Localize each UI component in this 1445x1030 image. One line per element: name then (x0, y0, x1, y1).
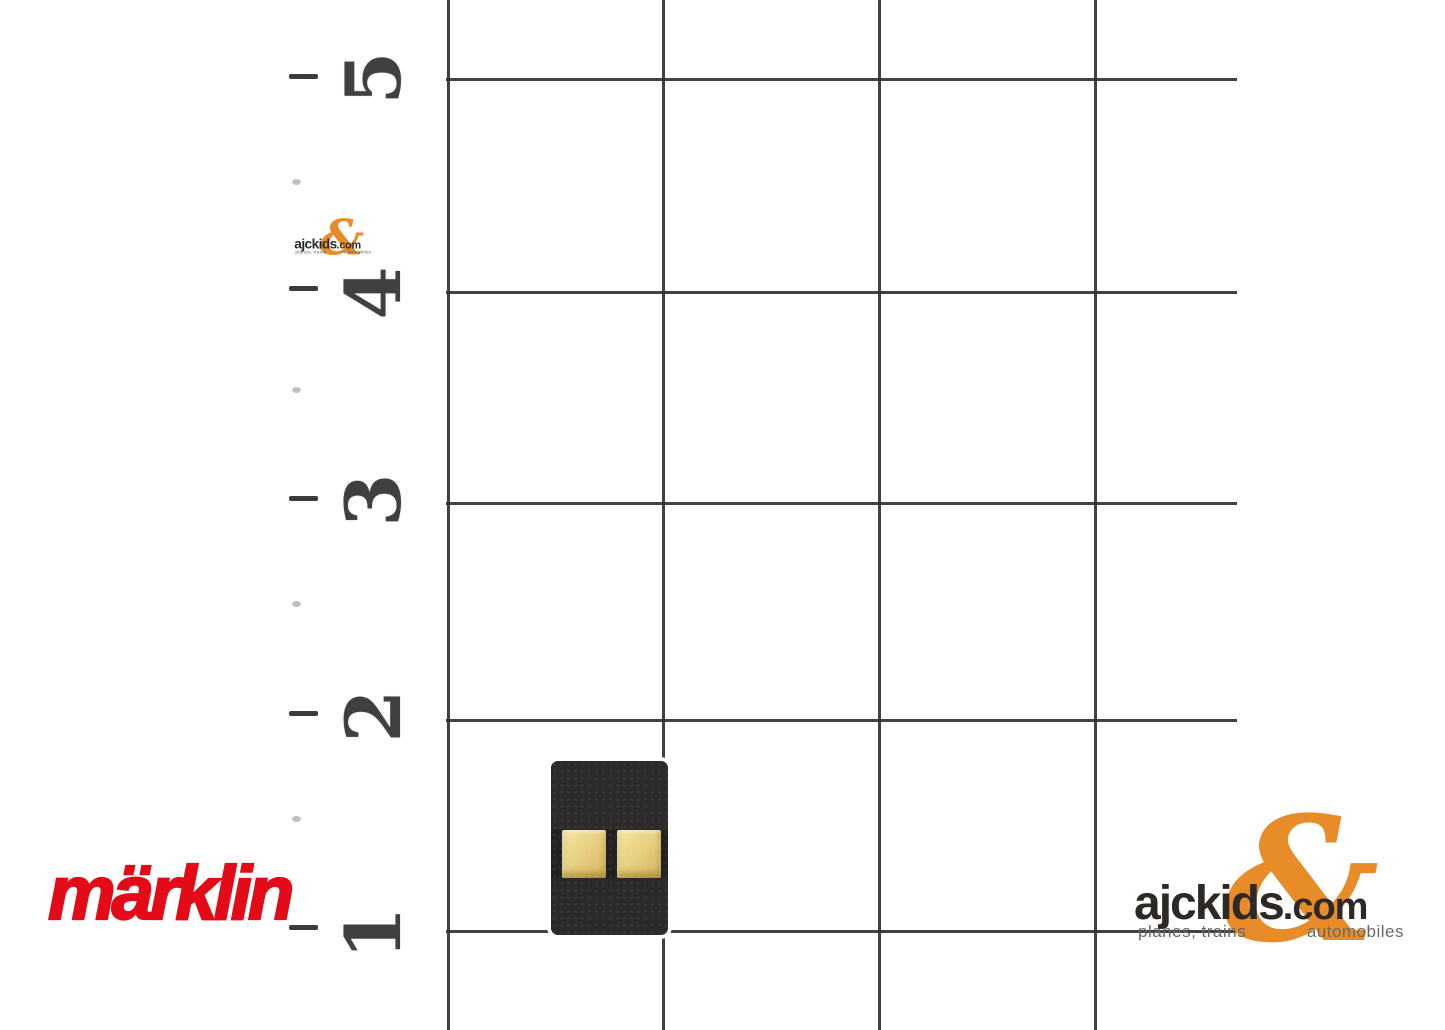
ruler-half-dot (292, 179, 301, 185)
grid-horizontal-line (446, 291, 1237, 294)
ajckids-watermark: & ajckids.com planes, trains automobiles (292, 222, 372, 260)
ruler-number: 5 (328, 33, 418, 123)
ruler-tick (289, 925, 318, 930)
tagline-right: automobiles (344, 249, 372, 255)
ruler-tick (289, 74, 318, 79)
gold-contact-right (617, 830, 661, 878)
ruler-tick (289, 711, 318, 716)
tagline-left: planes, trains (1138, 922, 1246, 942)
ruler-tick (289, 286, 318, 291)
ruler-half-dot (292, 816, 301, 822)
grid-vertical-line (1094, 0, 1097, 1030)
ruler-half-dot (292, 601, 301, 607)
gold-contact-left (562, 830, 606, 878)
tagline-right: automobiles (1307, 922, 1404, 942)
jumper-body-top (551, 761, 668, 830)
marklin-logo: märklin (48, 856, 290, 932)
ruler-number: 1 (328, 888, 418, 978)
ruler-number: 3 (328, 455, 418, 545)
grid-horizontal-line (446, 78, 1237, 81)
ruler-number: 2 (328, 671, 418, 761)
ajckids-tagline: planes, trains automobiles (295, 249, 371, 255)
jumper-connector-photo (551, 761, 668, 935)
tagline-left: planes, trains (295, 249, 326, 255)
grid-horizontal-line (446, 502, 1237, 505)
jumper-contact-band (551, 830, 668, 878)
jumper-body-bottom (551, 878, 668, 935)
grid-vertical-line (878, 0, 881, 1030)
ruler-tick (289, 496, 318, 501)
ajckids-tagline: planes, trains automobiles (1138, 922, 1404, 942)
grid-horizontal-line (446, 719, 1237, 722)
product-photo-canvas: 5 4 3 2 1 märklin & ajckids.com planes, … (0, 0, 1445, 1030)
grid-vertical-line (447, 0, 450, 1030)
ruler-half-dot (292, 387, 301, 393)
ajckids-logo: & ajckids.com planes, trains automobiles (1126, 826, 1408, 958)
